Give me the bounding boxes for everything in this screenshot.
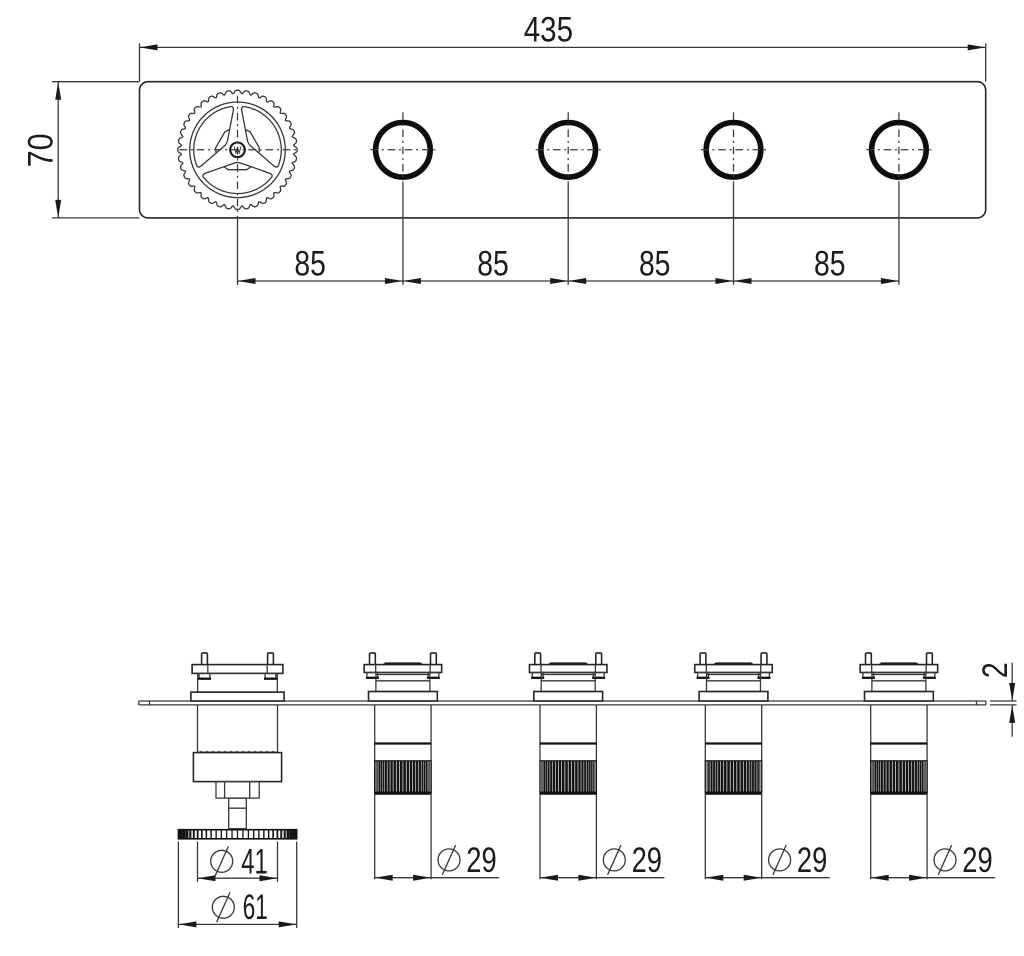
svg-text:2: 2: [976, 662, 1015, 678]
svg-text:29: 29: [632, 841, 662, 880]
svg-text:85: 85: [639, 245, 671, 284]
svg-text:85: 85: [294, 245, 326, 284]
svg-text:85: 85: [814, 245, 846, 284]
svg-text:61: 61: [243, 888, 268, 927]
svg-text:70: 70: [21, 133, 60, 167]
svg-text:29: 29: [797, 841, 827, 880]
svg-text:85: 85: [477, 245, 509, 284]
svg-text:29: 29: [466, 841, 496, 880]
svg-text:41: 41: [241, 843, 268, 882]
svg-text:435: 435: [524, 11, 573, 50]
svg-text:29: 29: [962, 841, 992, 880]
